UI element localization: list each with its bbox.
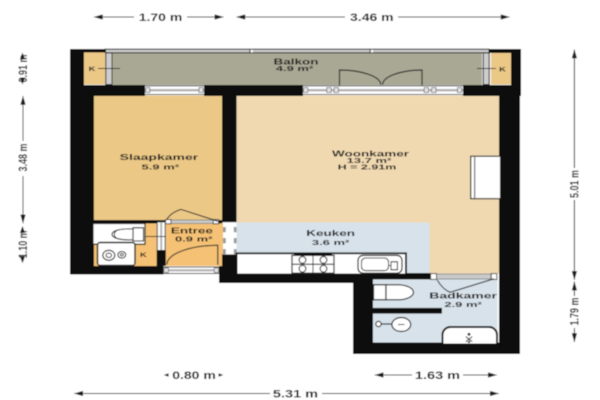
svg-text:3.46 m: 3.46 m	[350, 11, 394, 23]
svg-text:4.9 m²: 4.9 m²	[276, 65, 314, 74]
svg-text:0.80 m: 0.80 m	[172, 369, 216, 381]
svg-text:1.10 m: 1.10 m	[18, 230, 30, 258]
svg-text:Slaapkamer: Slaapkamer	[120, 154, 199, 163]
svg-text:1.63 m: 1.63 m	[415, 369, 460, 382]
svg-text:3.48 m: 3.48 m	[18, 144, 30, 172]
svg-text:0.9 m²: 0.9 m²	[175, 235, 213, 244]
svg-text:Badkamer: Badkamer	[429, 292, 497, 301]
svg-text:K: K	[140, 251, 147, 258]
svg-text:1.79 m: 1.79 m	[570, 298, 582, 326]
svg-text:H = 2.91m: H = 2.91m	[338, 164, 397, 172]
svg-text:0.91 m: 0.91 m	[18, 55, 30, 83]
svg-text:5.31 m: 5.31 m	[273, 387, 318, 400]
svg-text:5.01 m: 5.01 m	[570, 170, 582, 198]
svg-text:Keuken: Keuken	[306, 230, 355, 239]
svg-text:3.6 m²: 3.6 m²	[312, 239, 350, 248]
svg-text:Entree: Entree	[171, 227, 213, 236]
svg-text:K: K	[499, 66, 506, 73]
svg-text:1.70 m: 1.70 m	[139, 11, 183, 23]
svg-text:5.9 m²: 5.9 m²	[142, 163, 180, 172]
svg-text:2.9 m²: 2.9 m²	[444, 301, 482, 310]
svg-text:K: K	[89, 66, 96, 73]
